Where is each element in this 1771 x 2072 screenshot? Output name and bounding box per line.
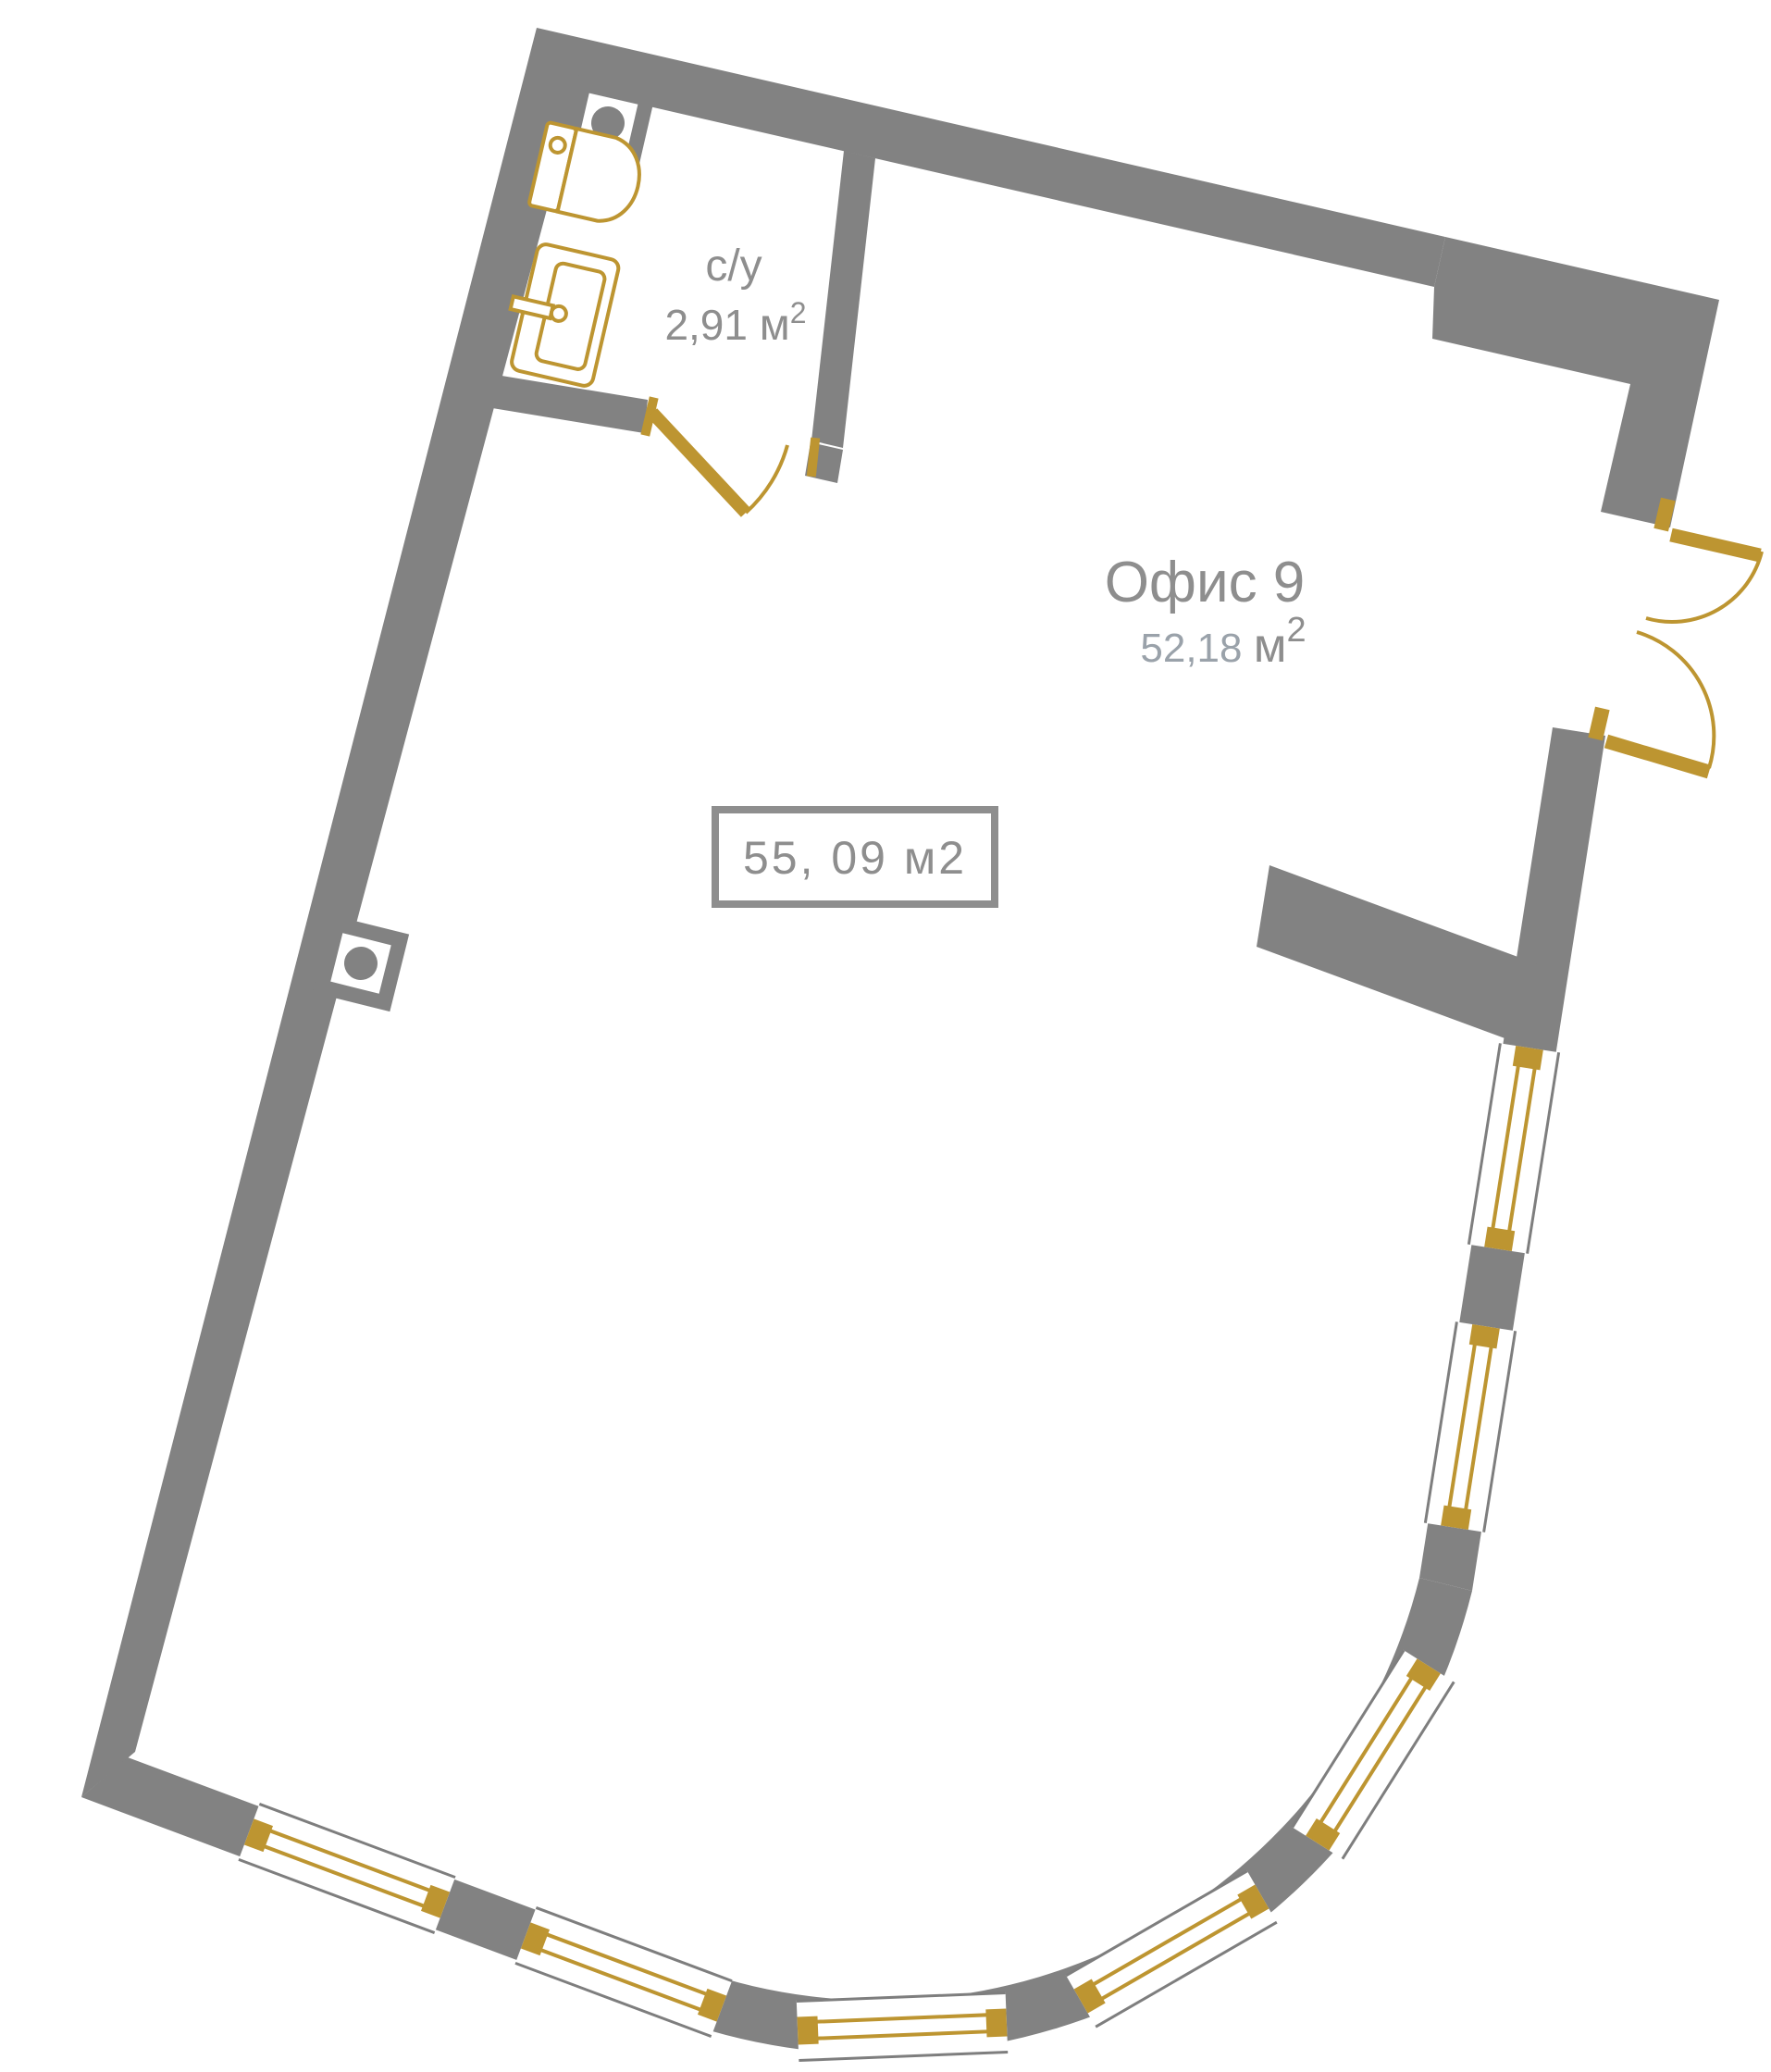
bathroom-door-swing: [746, 445, 787, 513]
total-area-box: 55, 09 м2: [715, 810, 995, 904]
floor-plan-page: с/у 2,91 м2 Офис 9 52,18 м2 55, 09 м2: [0, 0, 1771, 2072]
bathroom-door-leaf: [652, 413, 746, 513]
bathroom-area: 2,91 м2: [664, 296, 806, 350]
window-5: [1292, 1650, 1455, 1859]
bathroom-name: с/у: [705, 242, 762, 291]
door-jamb-bottom: [1588, 707, 1609, 741]
walls: [81, 28, 1719, 2054]
bathroom-door: [640, 396, 820, 513]
wall-left: [81, 28, 581, 1797]
door-leaf-lower: [1606, 741, 1709, 772]
window-1: [239, 1804, 456, 1934]
entrance-double-door: [1588, 498, 1762, 772]
wall-bathroom-partition: [811, 151, 875, 448]
window-4: [1066, 1870, 1278, 2028]
window-2: [515, 1907, 733, 2038]
windows: [239, 1043, 1560, 2061]
door-swing-upper: [1646, 552, 1762, 622]
office-label: Офис 9 52,18 м2: [1105, 551, 1307, 673]
door-leaf-upper: [1671, 535, 1760, 555]
window-7: [1468, 1043, 1559, 1254]
total-area-text: 55, 09 м2: [743, 832, 967, 884]
wall-top-right: [1432, 237, 1719, 527]
bathroom-label: с/у 2,91 м2: [664, 242, 806, 350]
window-6: [1424, 1321, 1516, 1532]
wall-interior-stub: [1257, 865, 1538, 1046]
office-name: Офис 9: [1105, 551, 1306, 614]
office-area: 52,18 м2: [1140, 611, 1306, 673]
floor-plan: с/у 2,91 м2 Офис 9 52,18 м2 55, 09 м2: [0, 0, 1771, 2072]
wall-top-thin: [537, 28, 1445, 287]
window-3: [797, 1991, 1008, 2061]
